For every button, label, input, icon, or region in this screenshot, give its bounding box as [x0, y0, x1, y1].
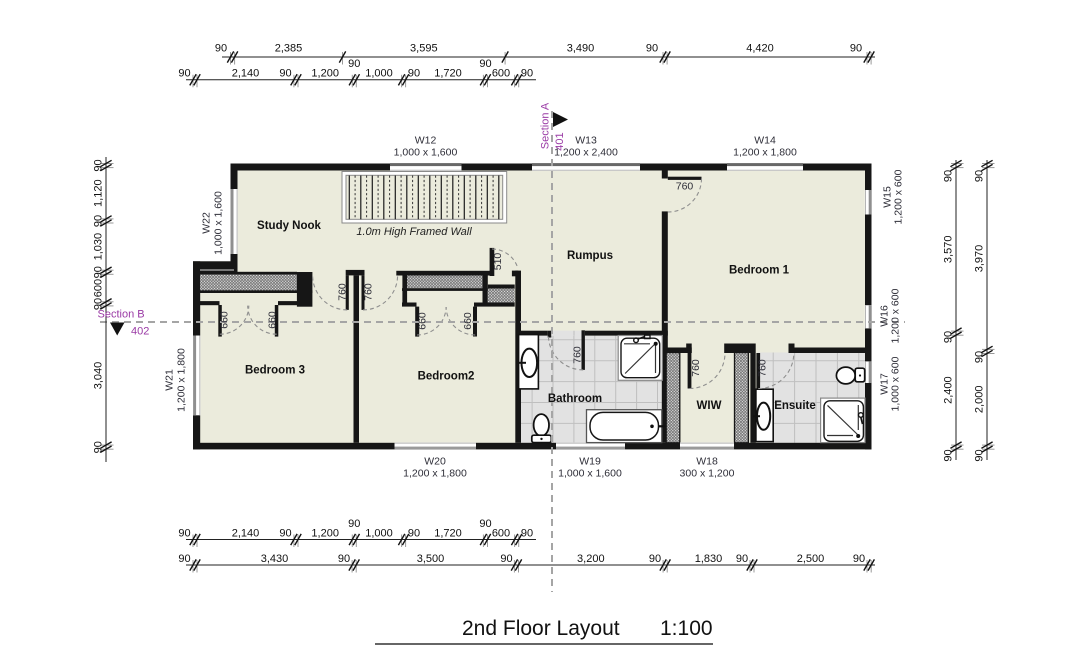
svg-text:3,430: 3,430: [261, 553, 289, 565]
svg-text:1,720: 1,720: [434, 528, 462, 540]
svg-text:1,000: 1,000: [365, 528, 393, 540]
svg-text:90: 90: [943, 331, 955, 343]
svg-text:1,000 x 600: 1,000 x 600: [890, 356, 902, 411]
svg-text:1,120: 1,120: [93, 179, 105, 207]
svg-text:600: 600: [492, 528, 510, 540]
svg-text:1,200 x 600: 1,200 x 600: [890, 288, 902, 343]
svg-text:760: 760: [363, 283, 375, 301]
svg-text:3,040: 3,040: [93, 362, 105, 390]
svg-text:Ensuite: Ensuite: [774, 400, 816, 412]
svg-text:Bedroom2: Bedroom2: [418, 371, 475, 383]
svg-text:1,200 x 600: 1,200 x 600: [893, 169, 905, 224]
svg-text:90: 90: [974, 170, 986, 182]
svg-text:4,420: 4,420: [746, 43, 774, 55]
svg-text:90: 90: [646, 43, 658, 55]
svg-text:90: 90: [521, 68, 533, 80]
svg-text:90: 90: [853, 553, 865, 565]
svg-text:3,970: 3,970: [974, 245, 986, 273]
svg-text:Section B: Section B: [98, 309, 145, 321]
svg-text:760: 760: [337, 283, 349, 301]
svg-text:W20: W20: [424, 456, 446, 468]
svg-text:90: 90: [178, 68, 190, 80]
svg-text:Bedroom 1: Bedroom 1: [729, 265, 790, 277]
svg-text:W21: W21: [164, 369, 176, 391]
svg-text:90: 90: [850, 43, 862, 55]
svg-text:600: 600: [492, 68, 510, 80]
svg-text:90: 90: [736, 553, 748, 565]
svg-text:90: 90: [943, 170, 955, 182]
svg-text:W12: W12: [415, 135, 437, 147]
svg-text:1,200 x 1,800: 1,200 x 1,800: [176, 348, 188, 412]
svg-text:1,830: 1,830: [695, 553, 723, 565]
svg-text:1,030: 1,030: [93, 233, 105, 261]
svg-text:660: 660: [417, 312, 429, 330]
svg-text:90: 90: [479, 58, 491, 70]
svg-text:760: 760: [676, 181, 694, 193]
svg-text:1.0m High Framed Wall: 1.0m High Framed Wall: [356, 226, 472, 238]
svg-text:3,500: 3,500: [417, 553, 445, 565]
svg-text:90: 90: [408, 68, 420, 80]
svg-text:1,000: 1,000: [365, 68, 393, 80]
svg-text:510: 510: [492, 253, 504, 271]
svg-text:1,000 x 1,600: 1,000 x 1,600: [394, 147, 458, 159]
svg-text:1,200: 1,200: [311, 68, 339, 80]
svg-text:Section A: Section A: [540, 102, 552, 149]
svg-text:2,400: 2,400: [943, 376, 955, 404]
svg-text:Study Nook: Study Nook: [257, 220, 321, 232]
svg-text:90: 90: [178, 553, 190, 565]
svg-text:90: 90: [521, 528, 533, 540]
svg-text:3,200: 3,200: [577, 553, 605, 565]
svg-text:660: 660: [267, 311, 279, 329]
svg-text:90: 90: [479, 518, 491, 530]
svg-text:Bathroom: Bathroom: [548, 393, 602, 405]
svg-text:2,140: 2,140: [232, 528, 260, 540]
svg-text:1,200 x 1,800: 1,200 x 1,800: [403, 468, 467, 480]
svg-text:Bedroom 3: Bedroom 3: [245, 365, 305, 377]
svg-text:90: 90: [93, 215, 105, 227]
svg-text:90: 90: [408, 528, 420, 540]
svg-text:2,500: 2,500: [797, 553, 825, 565]
svg-text:760: 760: [572, 346, 584, 364]
svg-text:2,385: 2,385: [275, 43, 303, 55]
svg-text:1,200: 1,200: [311, 528, 339, 540]
svg-text:1,720: 1,720: [434, 68, 462, 80]
svg-text:90: 90: [649, 553, 661, 565]
svg-text:90: 90: [93, 266, 105, 278]
svg-text:3,570: 3,570: [943, 236, 955, 264]
svg-text:1,000 x 1,600: 1,000 x 1,600: [558, 468, 622, 480]
svg-text:90: 90: [974, 351, 986, 363]
svg-text:300 x 1,200: 300 x 1,200: [680, 468, 735, 480]
svg-text:90: 90: [215, 43, 227, 55]
svg-text:2,000: 2,000: [974, 386, 986, 414]
svg-text:1,000 x 1,600: 1,000 x 1,600: [213, 191, 225, 255]
svg-text:2,140: 2,140: [232, 68, 260, 80]
svg-text:90: 90: [338, 553, 350, 565]
svg-text:W18: W18: [696, 456, 718, 468]
svg-text:1,200 x 1,800: 1,200 x 1,800: [733, 147, 797, 159]
svg-text:1:100: 1:100: [660, 617, 713, 640]
svg-text:90: 90: [943, 449, 955, 461]
svg-text:401: 401: [554, 132, 566, 150]
svg-text:90: 90: [279, 528, 291, 540]
svg-text:90: 90: [178, 528, 190, 540]
svg-text:760: 760: [690, 359, 702, 377]
svg-text:WIW: WIW: [697, 400, 722, 412]
svg-text:90: 90: [500, 553, 512, 565]
svg-text:W14: W14: [754, 135, 776, 147]
svg-text:90: 90: [279, 68, 291, 80]
svg-text:Rumpus: Rumpus: [567, 250, 613, 262]
svg-text:90: 90: [974, 449, 986, 461]
svg-text:W22: W22: [201, 212, 213, 234]
svg-text:2nd Floor Layout: 2nd Floor Layout: [462, 617, 620, 640]
svg-text:3,490: 3,490: [567, 43, 595, 55]
svg-text:W13: W13: [575, 135, 597, 147]
svg-text:W19: W19: [579, 456, 601, 468]
svg-text:90: 90: [348, 518, 360, 530]
svg-text:90: 90: [93, 159, 105, 171]
svg-text:660: 660: [462, 312, 474, 330]
svg-text:760: 760: [757, 359, 769, 377]
svg-text:3,595: 3,595: [410, 43, 438, 55]
svg-text:660: 660: [219, 311, 231, 329]
svg-text:90: 90: [93, 441, 105, 453]
svg-text:600: 600: [93, 279, 105, 297]
svg-text:90: 90: [348, 58, 360, 70]
svg-text:402: 402: [131, 326, 149, 338]
